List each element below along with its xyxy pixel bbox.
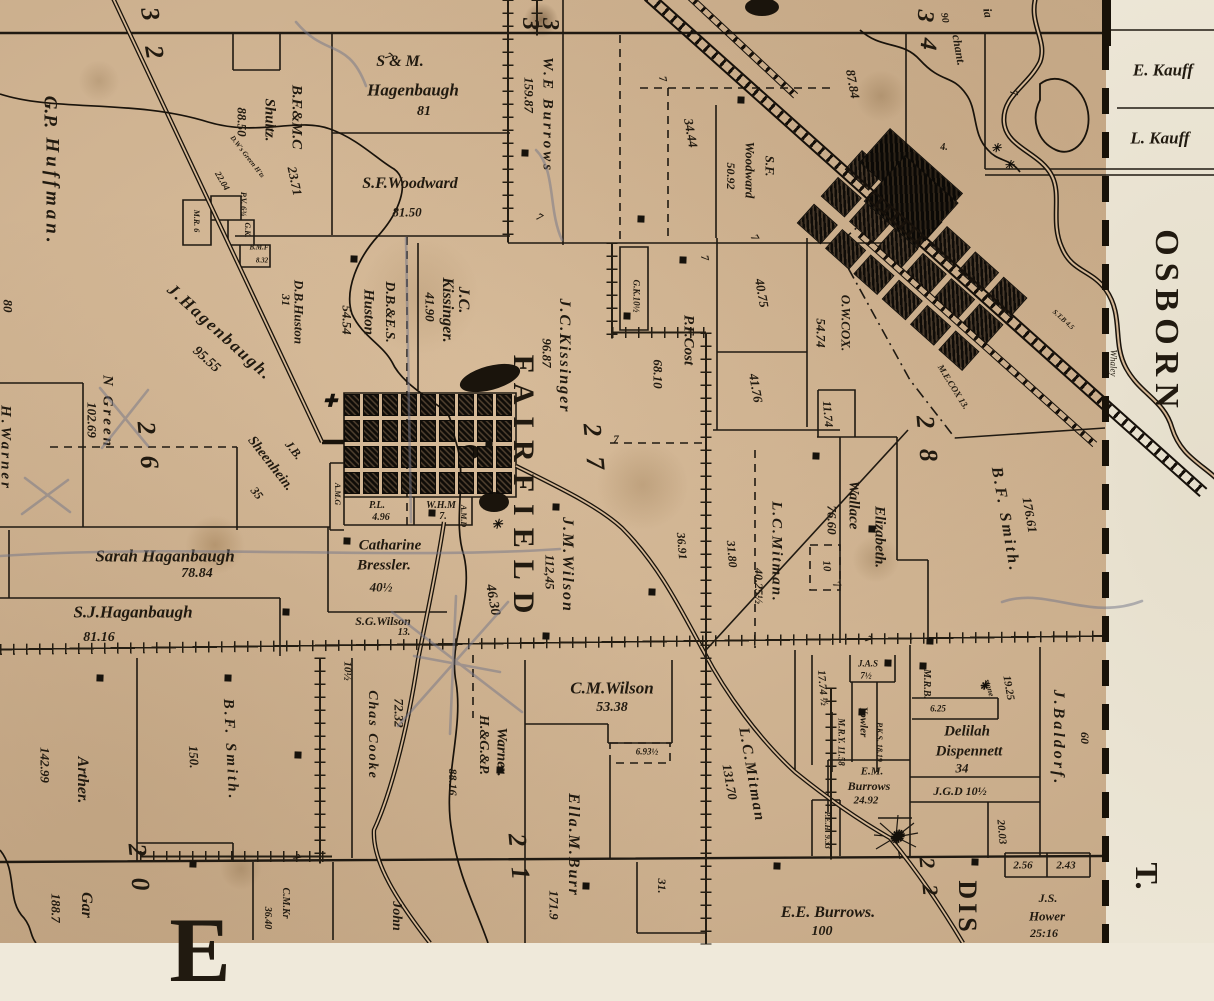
pencil-line: [0, 549, 560, 556]
pencil-scribble: [392, 596, 522, 734]
pencil-marks-svg: [0, 0, 1214, 943]
pencil-squiggle: [1002, 598, 1142, 608]
plat-map-canvas: 323334262728202122G.P.Huffman.80H.Warner…: [0, 0, 1214, 943]
pencil-x: [100, 388, 148, 448]
pencil-smudge: [536, 150, 562, 240]
pencil-x: [22, 478, 70, 514]
pencil-line: [406, 238, 411, 522]
pencil-squiggle: [296, 22, 366, 86]
